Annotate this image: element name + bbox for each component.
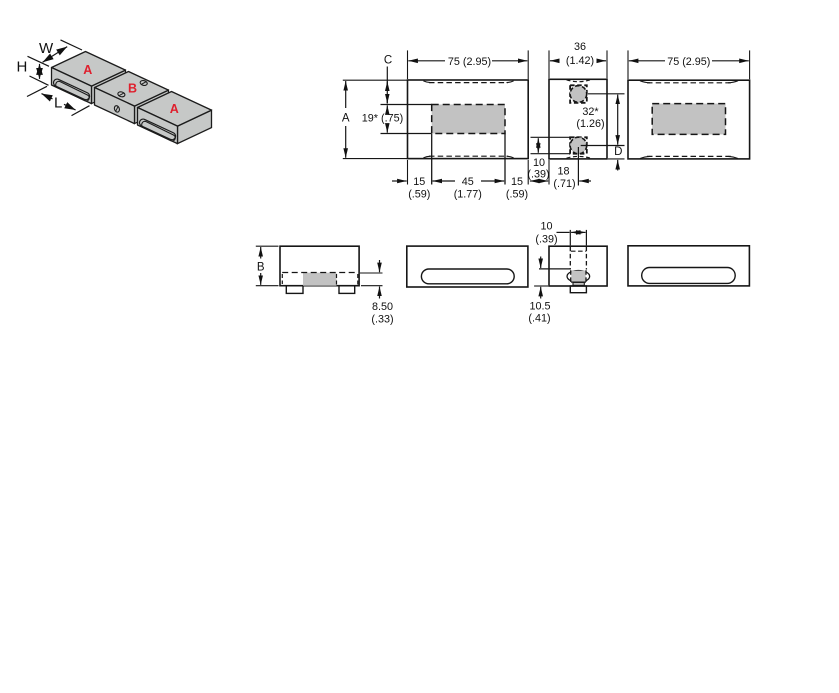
svg-text:L: L xyxy=(54,95,62,112)
svg-text:W: W xyxy=(39,40,54,57)
svg-text:(.39): (.39) xyxy=(527,169,549,181)
svg-text:15: 15 xyxy=(511,176,523,188)
svg-text:(1.77): (1.77) xyxy=(454,188,482,200)
svg-text:75 (2.95): 75 (2.95) xyxy=(448,56,491,68)
svg-text:19* (.75): 19* (.75) xyxy=(362,113,403,125)
svg-text:36: 36 xyxy=(574,41,586,53)
svg-text:(.41): (.41) xyxy=(528,312,550,324)
svg-text:(.71): (.71) xyxy=(553,178,575,190)
svg-text:(1.26): (1.26) xyxy=(576,118,604,130)
svg-text:(.39): (.39) xyxy=(535,233,557,245)
svg-text:A: A xyxy=(83,63,92,77)
svg-text:C: C xyxy=(384,55,392,67)
svg-text:45: 45 xyxy=(462,176,474,188)
svg-text:15: 15 xyxy=(413,176,425,188)
svg-text:(.59): (.59) xyxy=(408,188,430,200)
svg-text:B: B xyxy=(128,81,137,95)
svg-text:A: A xyxy=(170,102,179,116)
svg-text:10: 10 xyxy=(533,157,545,169)
svg-text:H: H xyxy=(17,59,28,76)
svg-text:32*: 32* xyxy=(582,106,599,118)
svg-text:10: 10 xyxy=(540,221,552,233)
svg-text:10.5: 10.5 xyxy=(529,300,550,312)
svg-text:8.50: 8.50 xyxy=(372,301,393,313)
svg-text:(.59): (.59) xyxy=(506,188,528,200)
svg-text:B: B xyxy=(257,261,265,273)
svg-text:(.33): (.33) xyxy=(371,314,393,326)
svg-text:75 (2.95): 75 (2.95) xyxy=(667,56,710,68)
svg-text:18: 18 xyxy=(557,166,569,178)
svg-text:D: D xyxy=(614,146,622,158)
svg-text:A: A xyxy=(342,113,350,125)
svg-text:(1.42): (1.42) xyxy=(566,55,594,67)
